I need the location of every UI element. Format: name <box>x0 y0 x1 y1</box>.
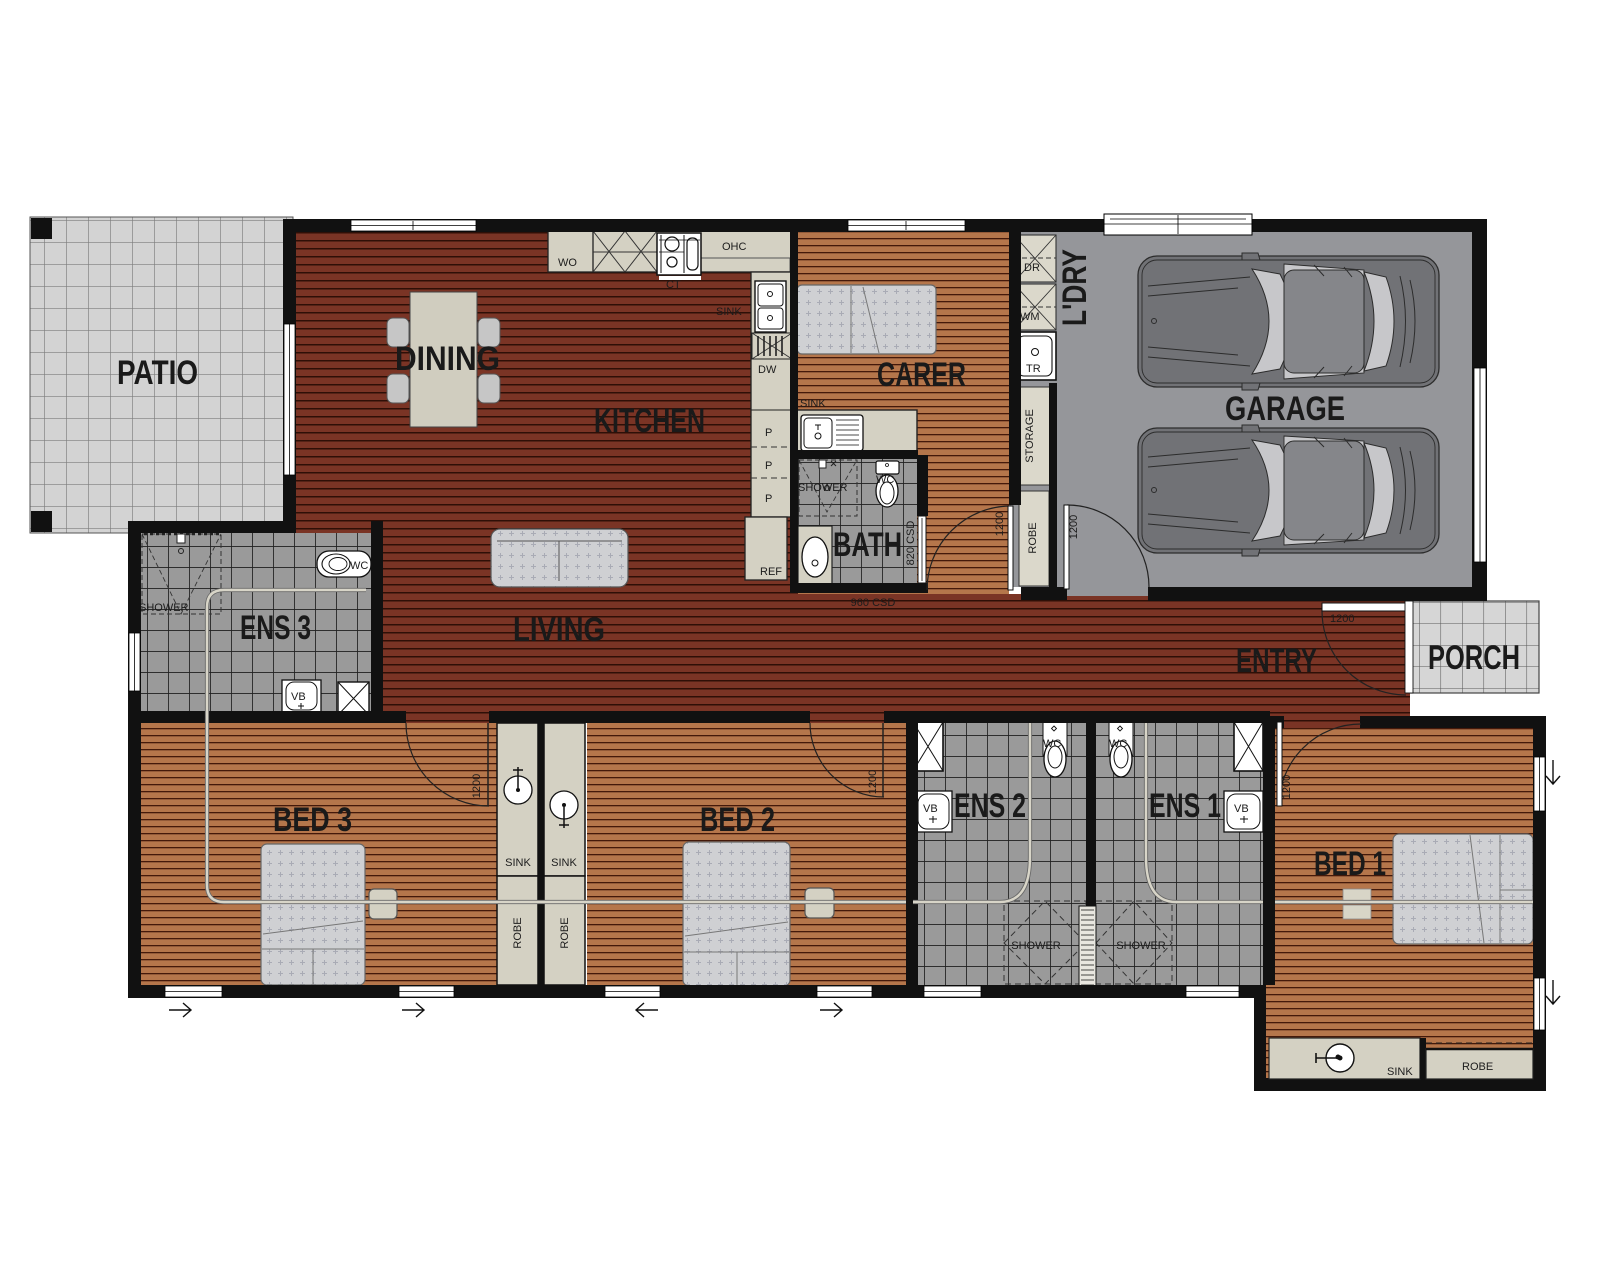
svg-text:P: P <box>765 493 772 505</box>
svg-text:1200: 1200 <box>471 774 483 798</box>
svg-text:820 CSD: 820 CSD <box>905 521 917 566</box>
svg-text:SHOWER: SHOWER <box>1011 940 1061 952</box>
svg-text:SINK: SINK <box>1387 1066 1413 1078</box>
svg-text:VB: VB <box>1234 803 1249 815</box>
svg-text:TR: TR <box>1026 363 1041 375</box>
svg-text:CARER: CARER <box>877 356 966 394</box>
svg-text:DR: DR <box>1024 262 1040 274</box>
svg-text:SINK: SINK <box>716 306 742 318</box>
svg-text:PATIO: PATIO <box>117 354 198 392</box>
svg-text:REF: REF <box>760 566 782 578</box>
svg-text:OHC: OHC <box>722 241 747 253</box>
svg-text:LIVING: LIVING <box>513 611 605 649</box>
svg-text:VB: VB <box>291 691 306 703</box>
svg-text:DINING: DINING <box>395 340 500 378</box>
svg-text:ROBE: ROBE <box>1027 522 1039 553</box>
svg-text:SINK: SINK <box>800 398 826 410</box>
svg-text:960 CSD: 960 CSD <box>851 597 896 609</box>
svg-text:ROBE: ROBE <box>559 917 571 948</box>
svg-text:GARAGE: GARAGE <box>1225 390 1345 428</box>
svg-text:WC: WC <box>1043 738 1061 750</box>
svg-text:1200: 1200 <box>1281 775 1293 799</box>
svg-text:SHOWER: SHOWER <box>1116 940 1166 952</box>
svg-text:ROBE: ROBE <box>1462 1061 1493 1073</box>
svg-text:1200: 1200 <box>994 512 1006 536</box>
svg-text:SINK: SINK <box>551 857 577 869</box>
svg-text:ENTRY: ENTRY <box>1236 642 1317 680</box>
svg-text:P: P <box>765 460 772 472</box>
svg-text:P: P <box>765 427 772 439</box>
svg-text:BED 2: BED 2 <box>700 801 775 839</box>
svg-text:1200: 1200 <box>1068 515 1080 539</box>
svg-text:ENS 3: ENS 3 <box>240 609 311 647</box>
svg-text:CT: CT <box>666 279 681 291</box>
svg-text:ROBE: ROBE <box>512 917 524 948</box>
svg-text:L'DRY: L'DRY <box>1056 249 1094 326</box>
svg-text:BED 3: BED 3 <box>273 801 352 839</box>
svg-text:BATH: BATH <box>833 526 902 564</box>
svg-text:SINK: SINK <box>505 857 531 869</box>
svg-text:DW: DW <box>758 364 777 376</box>
svg-text:STORAGE: STORAGE <box>1024 409 1036 463</box>
svg-text:WO: WO <box>558 257 577 269</box>
svg-text:PORCH: PORCH <box>1428 639 1520 677</box>
svg-text:ENS 2: ENS 2 <box>954 787 1026 825</box>
svg-text:WC: WC <box>350 560 368 572</box>
svg-text:KITCHEN: KITCHEN <box>594 402 705 440</box>
svg-text:1200: 1200 <box>1330 613 1354 625</box>
svg-text:WC: WC <box>1109 738 1127 750</box>
svg-text:VB: VB <box>923 803 938 815</box>
svg-text:SHOWER: SHOWER <box>139 602 189 614</box>
svg-text:1200: 1200 <box>867 770 879 794</box>
svg-text:SHOWER: SHOWER <box>798 482 848 494</box>
svg-text:WM: WM <box>1020 311 1040 323</box>
svg-text:ENS 1: ENS 1 <box>1149 787 1221 825</box>
svg-text:WC: WC <box>876 474 894 486</box>
svg-text:BED 1: BED 1 <box>1314 845 1386 883</box>
